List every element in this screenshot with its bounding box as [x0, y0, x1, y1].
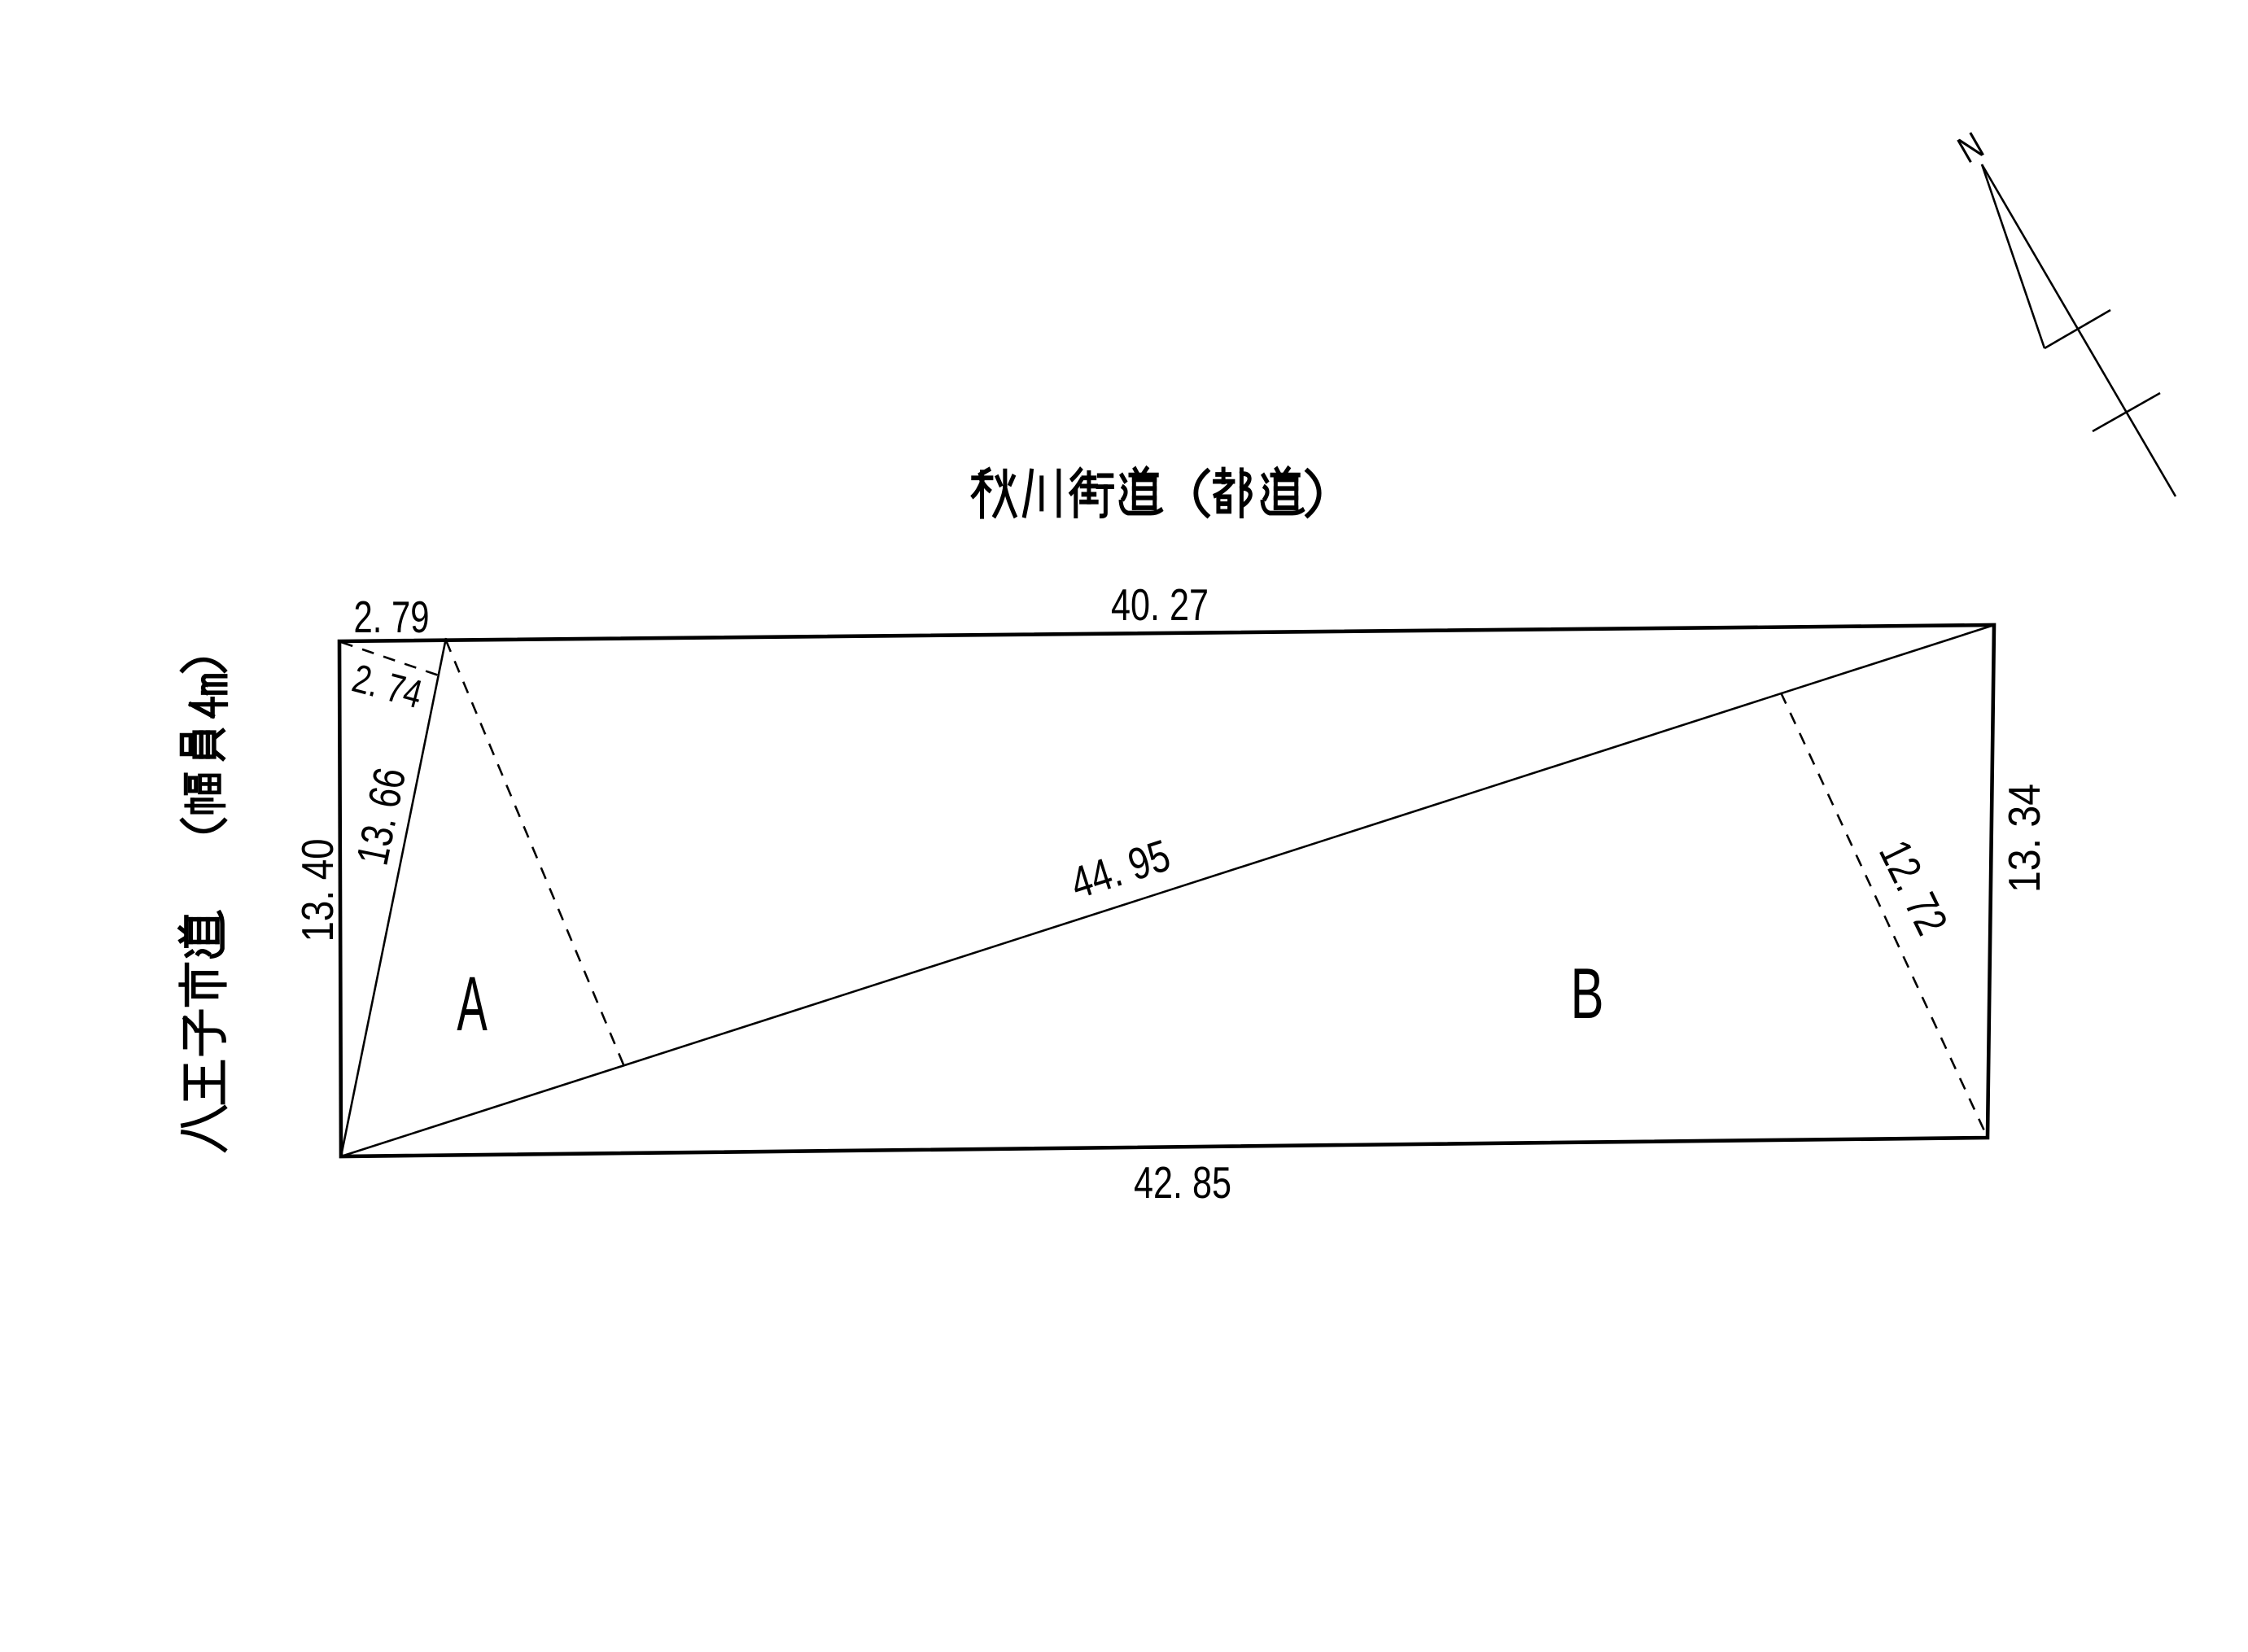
svg-text:13. 34: 13. 34: [1999, 784, 2049, 893]
svg-text:2. 79: 2. 79: [354, 592, 430, 642]
svg-text:A: A: [457, 960, 487, 1047]
svg-text:B: B: [1570, 954, 1603, 1034]
svg-text:42. 85: 42. 85: [1134, 1157, 1231, 1208]
svg-text:40. 27: 40. 27: [1111, 579, 1209, 630]
svg-text:13. 40: 13. 40: [292, 839, 343, 942]
